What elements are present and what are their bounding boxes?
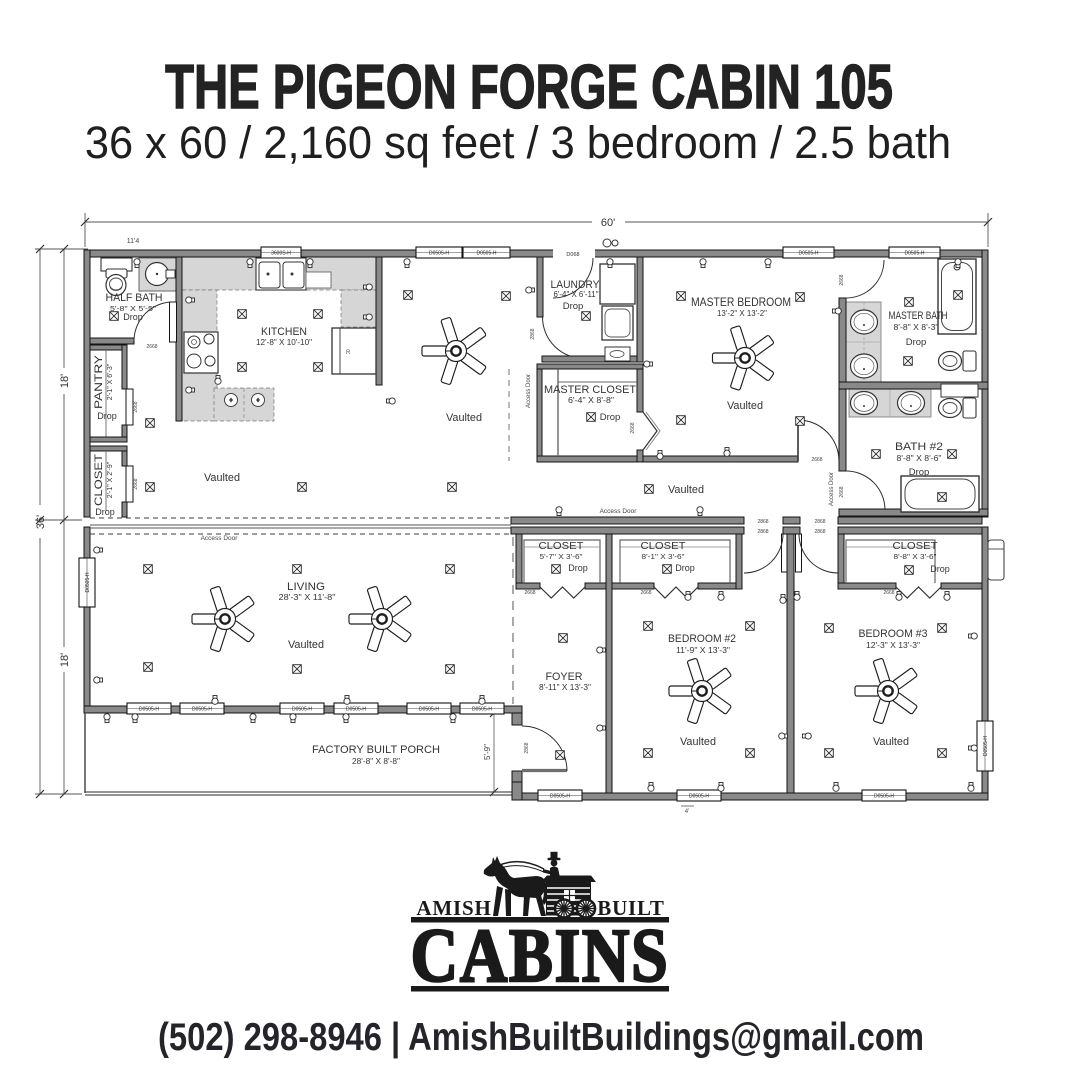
svg-text:Drop: Drop (97, 411, 117, 421)
svg-text:Vaulted: Vaulted (288, 639, 324, 651)
svg-text:Vaulted: Vaulted (668, 484, 704, 496)
svg-text:5'-7" X 3'-6": 5'-7" X 3'-6" (540, 552, 583, 561)
svg-text:8'-8" X 8'-6": 8'-8" X 8'-6" (897, 454, 942, 463)
svg-text:12'-8" X 10'-10": 12'-8" X 10'-10" (256, 338, 312, 347)
svg-text:BEDROOM #3: BEDROOM #3 (859, 628, 928, 640)
svg-text:D068: D068 (566, 252, 579, 258)
svg-text:Access Door: Access Door (201, 535, 239, 542)
svg-text:12'-3" X 13'-3": 12'-3" X 13'-3" (866, 641, 920, 650)
svg-text:2668: 2668 (146, 344, 157, 350)
svg-text:11'4: 11'4 (127, 238, 140, 245)
svg-text:D0505-H: D0505-H (139, 706, 159, 712)
svg-text:D0505-H: D0505-H (798, 250, 818, 256)
svg-text:D0505-H: D0505-H (292, 706, 312, 712)
svg-text:28'-8" X 8'-8": 28'-8" X 8'-8" (352, 757, 400, 766)
svg-text:D0505-H: D0505-H (689, 793, 709, 799)
svg-text:6'-4" X 8'-8": 6'-4" X 8'-8" (568, 396, 614, 405)
svg-text:Access Door: Access Door (526, 374, 532, 408)
svg-text:2868: 2868 (524, 742, 530, 753)
svg-text:5'-9": 5'-9" (483, 744, 492, 760)
svg-text:6'-4" X 6'-11": 6'-4" X 6'-11" (554, 290, 599, 299)
svg-text:CLOSET: CLOSET (93, 454, 105, 506)
svg-text:2'-1" X 2'-9": 2'-1" X 2'-9" (107, 461, 114, 498)
svg-text:Drop: Drop (123, 312, 143, 322)
svg-text:D0505-H: D0505-H (85, 572, 91, 592)
svg-text:8'-8" X 3'-6": 8'-8" X 3'-6" (894, 552, 937, 561)
svg-text:Drop: Drop (600, 412, 621, 423)
svg-text:D0505-H: D0505-H (419, 706, 439, 712)
svg-text:2868: 2868 (814, 519, 825, 525)
svg-text:CLOSET: CLOSET (641, 540, 687, 552)
svg-text:Drop: Drop (906, 337, 927, 348)
svg-text:2'-1" X 6'-3": 2'-1" X 6'-3" (107, 363, 114, 400)
svg-text:Vaulted: Vaulted (873, 736, 909, 748)
svg-text:Drop: Drop (675, 563, 695, 573)
svg-text:2668: 2668 (839, 486, 845, 497)
svg-text:D0505-H: D0505-H (550, 793, 570, 799)
svg-text:PANTRY: PANTRY (93, 354, 105, 409)
svg-text:28'-3" X 11'-8": 28'-3" X 11'-8" (279, 593, 336, 602)
svg-text:MASTER CLOSET: MASTER CLOSET (544, 384, 636, 396)
svg-text:2868: 2868 (814, 529, 825, 535)
svg-text:BEDROOM #2: BEDROOM #2 (668, 633, 736, 645)
svg-text:MASTER BATH: MASTER BATH (889, 310, 948, 322)
svg-text:FOYER: FOYER (546, 671, 583, 683)
svg-text:11'-9" X 13'-3": 11'-9" X 13'-3" (676, 646, 730, 655)
svg-text:HALF BATH: HALF BATH (106, 292, 163, 304)
svg-text:2668: 2668 (811, 457, 822, 463)
svg-text:36': 36' (35, 515, 47, 529)
svg-text:Access Door: Access Door (829, 472, 835, 506)
svg-text:Vaulted: Vaulted (446, 412, 482, 424)
svg-text:LIVING: LIVING (287, 581, 325, 593)
svg-text:2868: 2868 (530, 328, 536, 339)
svg-text:D0505-H: D0505-H (192, 706, 212, 712)
svg-text:D0505-H: D0505-H (346, 706, 366, 712)
svg-text:3600S-H: 3600S-H (271, 250, 291, 256)
svg-text:Drop: Drop (909, 467, 930, 478)
svg-text:Vaulted: Vaulted (204, 472, 240, 484)
svg-text:2668: 2668 (640, 590, 651, 596)
svg-text:2668: 2668 (883, 590, 894, 596)
svg-text:18': 18' (59, 653, 71, 667)
svg-text:2868: 2868 (757, 519, 768, 525)
svg-text:Vaulted: Vaulted (727, 400, 763, 412)
svg-text:CLOSET: CLOSET (539, 540, 585, 552)
svg-text:D0505-H: D0505-H (983, 736, 989, 756)
svg-text:2668: 2668 (133, 401, 139, 412)
svg-text:8'-1" X 3'-6": 8'-1" X 3'-6" (642, 552, 685, 561)
svg-text:36 x 60 / 2,160 sq feet / 3 be: 36 x 60 / 2,160 sq feet / 3 bedroom / 2.… (85, 118, 951, 168)
svg-text:Drop: Drop (563, 301, 584, 312)
svg-text:D0505-H: D0505-H (429, 250, 449, 256)
svg-text:MASTER BEDROOM: MASTER BEDROOM (691, 297, 791, 309)
svg-text:8'-8" X 8'-3": 8'-8" X 8'-3" (894, 323, 939, 332)
svg-text:THE PIGEON FORGE CABIN 105: THE PIGEON FORGE CABIN 105 (165, 52, 893, 122)
svg-text:Drop: Drop (930, 564, 950, 574)
svg-text:CABINS: CABINS (411, 915, 670, 998)
svg-text:Access Door: Access Door (600, 508, 638, 515)
svg-text:60': 60' (601, 217, 615, 229)
svg-text:2668: 2668 (133, 478, 139, 489)
svg-text:2668: 2668 (630, 422, 636, 433)
svg-text:(502) 298-8946 | AmishBuiltBui: (502) 298-8946 | AmishBuiltBuildings@gma… (158, 1014, 924, 1059)
svg-text:2868: 2868 (757, 529, 768, 535)
svg-text:CLOSET: CLOSET (893, 540, 939, 552)
svg-text:FACTORY BUILT PORCH: FACTORY BUILT PORCH (312, 744, 440, 756)
svg-text:Drop: Drop (95, 507, 115, 517)
svg-text:8'-11" X 13'-3": 8'-11" X 13'-3" (539, 683, 591, 692)
svg-text:KITCHEN: KITCHEN (261, 326, 307, 338)
svg-text:D0505-H: D0505-H (472, 706, 492, 712)
svg-text:BATH #2: BATH #2 (895, 441, 943, 453)
svg-text:2668: 2668 (524, 590, 535, 596)
svg-text:13'-2" X 13'-2": 13'-2" X 13'-2" (717, 309, 767, 318)
svg-text:4': 4' (685, 809, 689, 815)
svg-text:18': 18' (59, 374, 71, 388)
svg-text:2668: 2668 (839, 274, 845, 285)
svg-text:D0505-H: D0505-H (476, 250, 496, 256)
svg-text:Drop: Drop (568, 563, 588, 573)
svg-text:D0505-H: D0505-H (874, 793, 894, 799)
svg-text:Vaulted: Vaulted (680, 736, 716, 748)
svg-text:R: R (346, 350, 351, 356)
svg-text:D0505-H: D0505-H (904, 250, 924, 256)
